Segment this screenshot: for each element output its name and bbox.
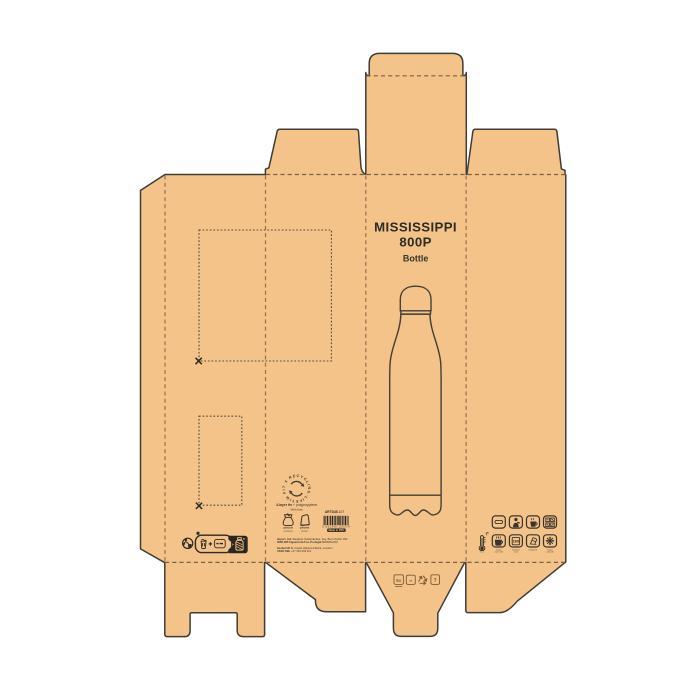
svg-text:max: max: [480, 552, 484, 554]
svg-text:ARTD45-107: ARTD45-107: [325, 510, 345, 514]
svg-text:3080-385 Figueira da Foz, Port: 3080-385 Figueira da Foz, Portugal 80032…: [277, 540, 338, 544]
svg-text:leakproof: leakproof: [529, 549, 538, 551]
svg-text:Made in PRC: Made in PRC: [328, 528, 344, 532]
svg-text:UK09 OBL +47 351 093 321: UK09 OBL +47 351 093 321: [277, 549, 312, 553]
svg-text:included: included: [284, 530, 294, 533]
svg-text:cold 24h: cold 24h: [546, 552, 554, 554]
svg-text:steel: steel: [514, 551, 519, 554]
svg-text:?: ?: [434, 578, 437, 584]
svg-text:800P: 800P: [399, 235, 431, 250]
svg-text:5 031345 120379: 5 031345 120379: [322, 525, 350, 529]
svg-text:MISSISSIPPI: MISSISSIPPI: [374, 220, 457, 235]
svg-text:pocket: pocket: [301, 530, 308, 533]
svg-text:∞: ∞: [409, 578, 412, 583]
svg-text:warm 12h: warm 12h: [494, 552, 503, 554]
svg-text:With flow: With flow: [291, 507, 304, 511]
svg-text:5x: 5x: [396, 578, 402, 583]
svg-text:18/8: 18/8: [513, 540, 520, 544]
svg-text:Bottle: Bottle: [403, 253, 429, 263]
